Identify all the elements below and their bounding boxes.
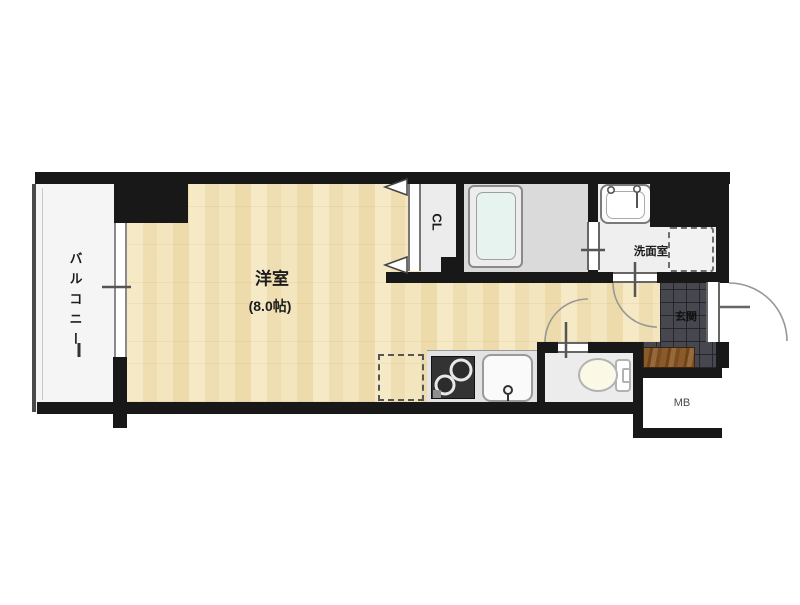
hallway-floor <box>127 283 660 342</box>
bathtub-inner <box>476 192 516 260</box>
pillar-top-left <box>114 172 188 223</box>
balcony-window <box>114 223 127 357</box>
washroom-label: 洗面室 <box>634 243 669 259</box>
meter-box-label: MB <box>674 397 691 409</box>
main-room-size-label: (8.0帖) <box>249 296 292 316</box>
closet-label: CL <box>430 213 445 230</box>
wall-mb-bottom <box>633 428 722 438</box>
balcony-outer-edge <box>32 184 36 412</box>
washing-machine-pan <box>668 227 714 272</box>
balcony-inner-line <box>42 188 43 400</box>
wall-right-lower <box>716 342 729 368</box>
bathroom-door <box>587 222 600 270</box>
refrigerator-space <box>378 354 424 401</box>
wall-entrance-south <box>643 368 722 378</box>
toilet-door <box>558 342 588 353</box>
toilet-tank-notch <box>622 368 631 383</box>
washbasin-bowl <box>606 191 645 219</box>
closet-door-panel <box>408 184 421 271</box>
stove <box>431 356 475 399</box>
entrance-door <box>706 282 720 342</box>
balcony-label: バルコニー <box>66 252 85 353</box>
entrance-door-arc <box>729 283 787 341</box>
closet-corner-notch <box>441 257 462 272</box>
wall-bottom <box>37 402 643 414</box>
kitchen-sink <box>482 354 533 402</box>
wall-below-window <box>113 357 127 402</box>
washroom-door <box>613 272 657 283</box>
floor-plan: バルコニー 洋室 (8.0帖) CL 洗面室 玄関 MB <box>0 0 800 605</box>
wall-right-upper <box>716 172 729 282</box>
main-room-label: 洋室 <box>255 265 289 290</box>
entrance-label: 玄関 <box>675 308 697 324</box>
toilet-bowl <box>578 358 618 392</box>
wall-mb-left <box>633 342 643 438</box>
wall-toilet-left <box>537 342 545 404</box>
entrance-step <box>643 347 695 368</box>
pillar-top-right <box>650 172 723 227</box>
wall-south-of-bath <box>386 272 613 283</box>
wall-bottom-stub <box>113 414 127 428</box>
